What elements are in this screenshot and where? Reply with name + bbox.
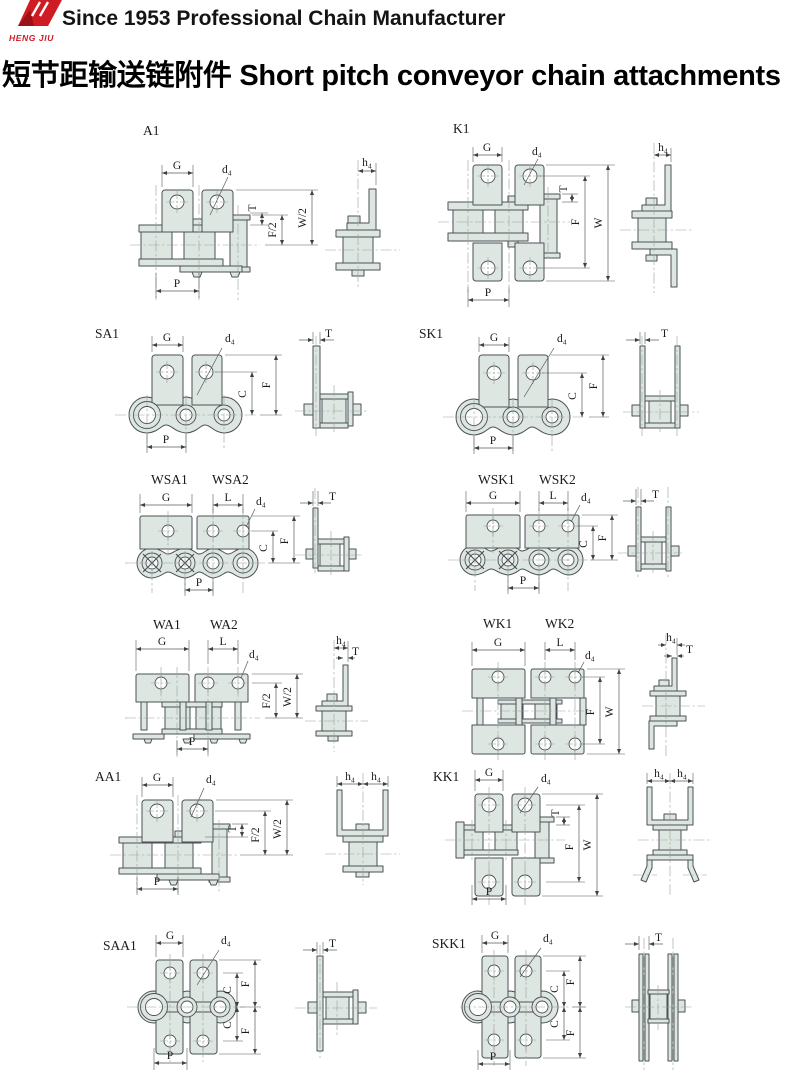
dim-label-p: P xyxy=(196,577,202,589)
dim-g: G xyxy=(136,636,189,671)
dim-f: F xyxy=(582,677,605,744)
dim-h4: h₄ xyxy=(654,142,671,162)
dim-h4-right: h₄ xyxy=(670,768,693,784)
dim-label-f: F xyxy=(565,979,577,985)
dim-label-g: G xyxy=(483,142,491,154)
dim-label-p: P xyxy=(154,876,160,888)
dim-label-t: T xyxy=(329,938,336,950)
dim-label-d4: d₄ xyxy=(225,333,235,345)
side-view: h₄ T xyxy=(305,635,368,752)
dim-p: P xyxy=(156,273,199,298)
dim-label-d4: d₄ xyxy=(543,933,553,945)
dim-label-c: C xyxy=(567,392,579,400)
dim-label-g: G xyxy=(494,637,502,649)
dim-label-f: F xyxy=(585,709,597,715)
dim-label-g: G xyxy=(489,490,497,502)
dim-label-p: P xyxy=(167,1050,173,1062)
dim-label-g: G xyxy=(163,332,171,344)
front-view xyxy=(133,673,250,743)
dim-label-d4: d₄ xyxy=(581,492,591,504)
dim-f2: F/2 xyxy=(252,683,282,718)
dim-label-f: F xyxy=(570,219,582,225)
dim-p: P xyxy=(474,435,513,454)
dim-label-t: T xyxy=(352,646,359,658)
dim-f: F xyxy=(252,516,300,563)
dim-label-f: F xyxy=(564,844,576,850)
dim-t: T xyxy=(626,328,668,344)
dim-l: L xyxy=(545,637,575,660)
diagram-wsk: WSK1 WSK2 G L d₄ C F xyxy=(420,463,720,608)
dim-label-l: L xyxy=(549,490,556,502)
dim-label-t: T xyxy=(558,185,570,192)
dim-f: F xyxy=(582,515,618,560)
dim-label-t: T xyxy=(686,644,693,656)
dim-g: G xyxy=(156,930,183,957)
dim-label-t: T xyxy=(652,489,659,501)
dim-l: L xyxy=(539,490,568,511)
side-view: h₄ h₄ xyxy=(325,771,400,885)
side-view: T xyxy=(295,488,362,575)
dim-f2: F/2 xyxy=(252,215,288,245)
diagram-label: A1 xyxy=(143,123,160,138)
hengjiu-logo-icon: HENG JIU xyxy=(8,0,64,46)
diagram-label: SAA1 xyxy=(103,938,137,953)
dim-label-p: P xyxy=(485,287,491,299)
diagram-label: WSK1 xyxy=(478,472,515,487)
dim-label-w2: W/2 xyxy=(272,819,284,839)
dim-label-g: G xyxy=(153,772,161,784)
dim-label-c: C xyxy=(222,986,234,994)
dim-label-w2: W/2 xyxy=(297,208,309,228)
side-view: T xyxy=(623,328,699,436)
side-view: T xyxy=(295,938,377,1058)
dim-label-g: G xyxy=(162,492,170,504)
dim-p: P xyxy=(508,575,539,594)
dim-label-f: F xyxy=(240,981,252,987)
diagram-label: WA1 xyxy=(153,617,181,632)
dim-label-h4: h₄ xyxy=(654,768,664,780)
logo-text: HENG JIU xyxy=(9,33,54,43)
dim-label-w: W xyxy=(604,706,616,717)
diagram-label: WSK2 xyxy=(539,472,576,487)
dim-label-d4: d₄ xyxy=(221,935,231,947)
front-view xyxy=(139,190,250,277)
dim-p: P xyxy=(468,287,509,307)
dim-label-p: P xyxy=(189,736,195,748)
diagram-label: WA2 xyxy=(210,617,238,632)
catalog-page: { "header": { "logo_text": "HENG JIU", "… xyxy=(0,0,800,1083)
diagram-label: SKK1 xyxy=(432,936,466,951)
dim-label-d4: d₄ xyxy=(557,333,567,345)
tagline: Since 1953 Professional Chain Manufactur… xyxy=(62,7,505,31)
front-view xyxy=(137,516,258,578)
dim-label-p: P xyxy=(486,886,492,898)
diagram-wk: WK1 WK2 G L d₄ F xyxy=(420,612,720,767)
diagram-label: WK1 xyxy=(483,616,512,631)
dim-l: L xyxy=(213,492,243,513)
dim-label-w2: W/2 xyxy=(282,687,294,707)
dim-label-p: P xyxy=(163,434,169,446)
dim-label-g: G xyxy=(491,930,499,942)
dim-label-f: F xyxy=(279,538,291,544)
dim-label-f2: F/2 xyxy=(261,693,273,709)
side-view: h₄ T xyxy=(642,632,705,757)
diagram-label: AA1 xyxy=(95,769,121,784)
dim-h4-left: h₄ xyxy=(337,771,363,787)
dim-label-l: L xyxy=(224,492,231,504)
dim-label-h4: h₄ xyxy=(362,157,372,169)
dim-label-t: T xyxy=(661,328,668,340)
dim-label-d4: d₄ xyxy=(585,650,595,662)
diagram-sk1: SK1 G d₄ C F P xyxy=(415,320,730,460)
dim-label-h4: h₄ xyxy=(371,771,381,783)
diagram-label: SK1 xyxy=(419,326,443,341)
dim-label-c: C xyxy=(222,1021,234,1029)
page-title-zh: 短节距输送链附件 xyxy=(2,60,232,92)
dim-label-p: P xyxy=(490,1051,496,1063)
diagram-wa: WA1 WA2 G L d₄ F/2 xyxy=(100,612,400,764)
dim-w2: W/2 xyxy=(252,674,303,718)
dim-g: G xyxy=(479,332,509,352)
dim-label-l: L xyxy=(556,637,563,649)
dim-label-c: C xyxy=(258,544,270,552)
dim-label-p: P xyxy=(490,435,496,447)
side-view: h₄ h₄ xyxy=(633,768,712,895)
diagram-label: WSA1 xyxy=(151,472,188,487)
dim-label-f2: F/2 xyxy=(250,827,262,843)
dim-label-f: F xyxy=(240,1028,252,1034)
dim-label-h4: h₄ xyxy=(336,635,346,647)
dim-g: G xyxy=(152,332,183,352)
dim-t: T xyxy=(550,809,570,825)
front-view xyxy=(456,794,554,896)
front-view xyxy=(129,355,242,433)
dim-label-t: T xyxy=(329,491,336,503)
diagram-label: WK2 xyxy=(545,616,574,631)
side-view: T xyxy=(295,328,369,436)
dim-t: T xyxy=(300,491,336,506)
dim-label-f: F xyxy=(588,383,600,389)
dim-g: G xyxy=(482,930,508,953)
diagram-label: SA1 xyxy=(95,326,119,341)
side-view: h₄ xyxy=(620,142,692,293)
dim-label-d4: d₄ xyxy=(249,649,259,661)
dim-label-c: C xyxy=(549,1020,561,1028)
dim-label-c: C xyxy=(549,985,561,993)
dim-label-h4: h₄ xyxy=(677,768,687,780)
dim-label-w: W xyxy=(593,217,605,228)
dim-label-g: G xyxy=(173,160,181,172)
diagram-label: WSA2 xyxy=(212,472,249,487)
dim-t: T xyxy=(299,328,334,344)
dim-label-t: T xyxy=(247,204,259,211)
side-view: h₄ xyxy=(325,157,400,287)
dim-label-d4: d₄ xyxy=(256,496,266,508)
front-view xyxy=(472,667,586,754)
dim-label-g: G xyxy=(158,636,166,648)
diagram-kk1: KK1 G d₄ T F xyxy=(420,765,740,923)
dim-l: L xyxy=(208,636,238,664)
diagram-label: KK1 xyxy=(433,769,459,784)
diagram-wsa: WSA1 WSA2 G L d₄ C F xyxy=(100,463,400,608)
dim-g: G xyxy=(472,637,525,666)
dim-label-h4: h₄ xyxy=(345,771,355,783)
dim-label-d4: d₄ xyxy=(206,774,216,786)
dim-h4: h₄ xyxy=(658,632,685,655)
dim-label-f: F xyxy=(261,382,273,388)
dim-label-f2: F/2 xyxy=(267,222,279,238)
dim-label-p: P xyxy=(174,278,180,290)
diagram-k1: K1 G d₄ T F xyxy=(420,115,740,315)
dim-label-d4: d₄ xyxy=(532,146,542,158)
dim-g: G xyxy=(473,142,502,162)
dim-label-t: T xyxy=(325,328,332,340)
dim-h4: h₄ xyxy=(358,157,376,185)
dim-p: P xyxy=(147,434,186,453)
page-title-en: Short pitch conveyor chain attachments xyxy=(239,60,780,92)
dim-label-d4: d₄ xyxy=(541,773,551,785)
side-view: T xyxy=(618,487,682,578)
dim-label-t: T xyxy=(227,825,239,832)
page-title: 短节距输送链附件 Short pitch conveyor chain atta… xyxy=(2,52,781,94)
diagram-aa1: AA1 G d₄ T F/2 xyxy=(85,765,405,923)
dim-g: G xyxy=(140,492,192,513)
dim-label-h4: h₄ xyxy=(666,632,676,644)
front-view xyxy=(460,515,583,575)
dim-label-t: T xyxy=(550,809,562,816)
dim-label-g: G xyxy=(490,332,498,344)
dim-p: P xyxy=(185,577,213,596)
dim-label-f: F xyxy=(597,535,609,541)
dim-g: G xyxy=(162,160,193,187)
diagram-saa1: SAA1 G d₄ C F C xyxy=(85,930,405,1080)
dim-label-p: P xyxy=(520,575,526,587)
dim-g: G xyxy=(142,772,173,797)
dim-label-c: C xyxy=(237,390,249,398)
diagram-label: K1 xyxy=(453,121,470,136)
front-view xyxy=(119,800,230,885)
diagram-sa1: SA1 G d₄ C F P xyxy=(85,320,395,460)
dim-label-l: L xyxy=(219,636,226,648)
diagram-a1: A1 G d₄ T F/2 xyxy=(100,115,410,315)
dim-t: T xyxy=(623,489,659,505)
diagram-skk1: SKK1 G d₄ C F C xyxy=(420,930,720,1080)
dim-label-d4: d₄ xyxy=(222,164,232,176)
dim-label-g: G xyxy=(166,930,174,942)
dim-label-c: C xyxy=(578,540,590,548)
dim-label-g: G xyxy=(485,767,493,779)
dim-h4-left: h₄ xyxy=(647,768,670,784)
front-view xyxy=(448,165,560,281)
dim-label-w: W xyxy=(582,839,594,850)
dim-t: T xyxy=(664,644,693,656)
dim-label-t: T xyxy=(655,932,662,944)
dim-h4-right: h₄ xyxy=(363,771,388,787)
dim-t: T xyxy=(558,185,578,202)
side-view: T xyxy=(625,932,692,1070)
dim-label-h4: h₄ xyxy=(658,142,668,154)
dim-label-f: F xyxy=(565,1030,577,1036)
